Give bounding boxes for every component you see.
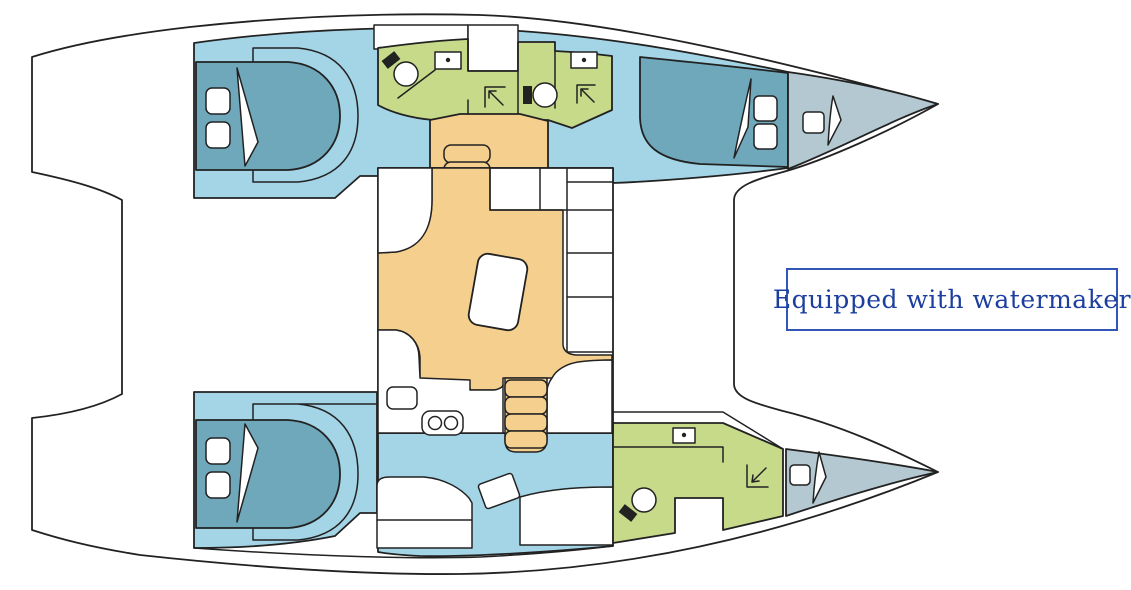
galley-sink (429, 417, 442, 430)
watermaker-label-box: Equipped with watermaker (786, 268, 1118, 331)
toilet-tank-icon (523, 86, 532, 104)
pillow (754, 96, 777, 121)
catamaran-layout-screenshot: Equipped with watermaker (0, 0, 1131, 590)
bottom-bow (786, 449, 938, 516)
sink-drain (446, 58, 450, 62)
berth (196, 62, 340, 170)
stair-step (505, 431, 547, 448)
watermaker-label-text: Equipped with watermaker (773, 285, 1131, 314)
sink-drain (582, 58, 586, 62)
stair-step (505, 414, 547, 431)
seat-unit (520, 487, 613, 545)
hatch (790, 465, 810, 485)
top-forward-cabin (640, 57, 788, 167)
saloon (378, 168, 613, 452)
pillow (206, 438, 230, 464)
desk-unit (377, 477, 472, 548)
galley-sink (445, 417, 458, 430)
toilet-icon (533, 83, 557, 107)
pillow (754, 124, 777, 149)
sink-drain (682, 433, 686, 437)
aft-seat (547, 360, 612, 433)
stair-step (444, 145, 490, 163)
top-stairwell-box (468, 25, 518, 71)
pillow (206, 122, 230, 148)
pillow (206, 88, 230, 114)
bottom-companionway (505, 378, 547, 452)
toilet-icon (632, 488, 656, 512)
hatch (803, 112, 824, 133)
pillow (206, 472, 230, 498)
top-bow (788, 72, 938, 169)
stair-step (505, 397, 547, 414)
toilet-icon (394, 62, 418, 86)
fridge (387, 387, 417, 409)
stair-step (505, 380, 547, 397)
